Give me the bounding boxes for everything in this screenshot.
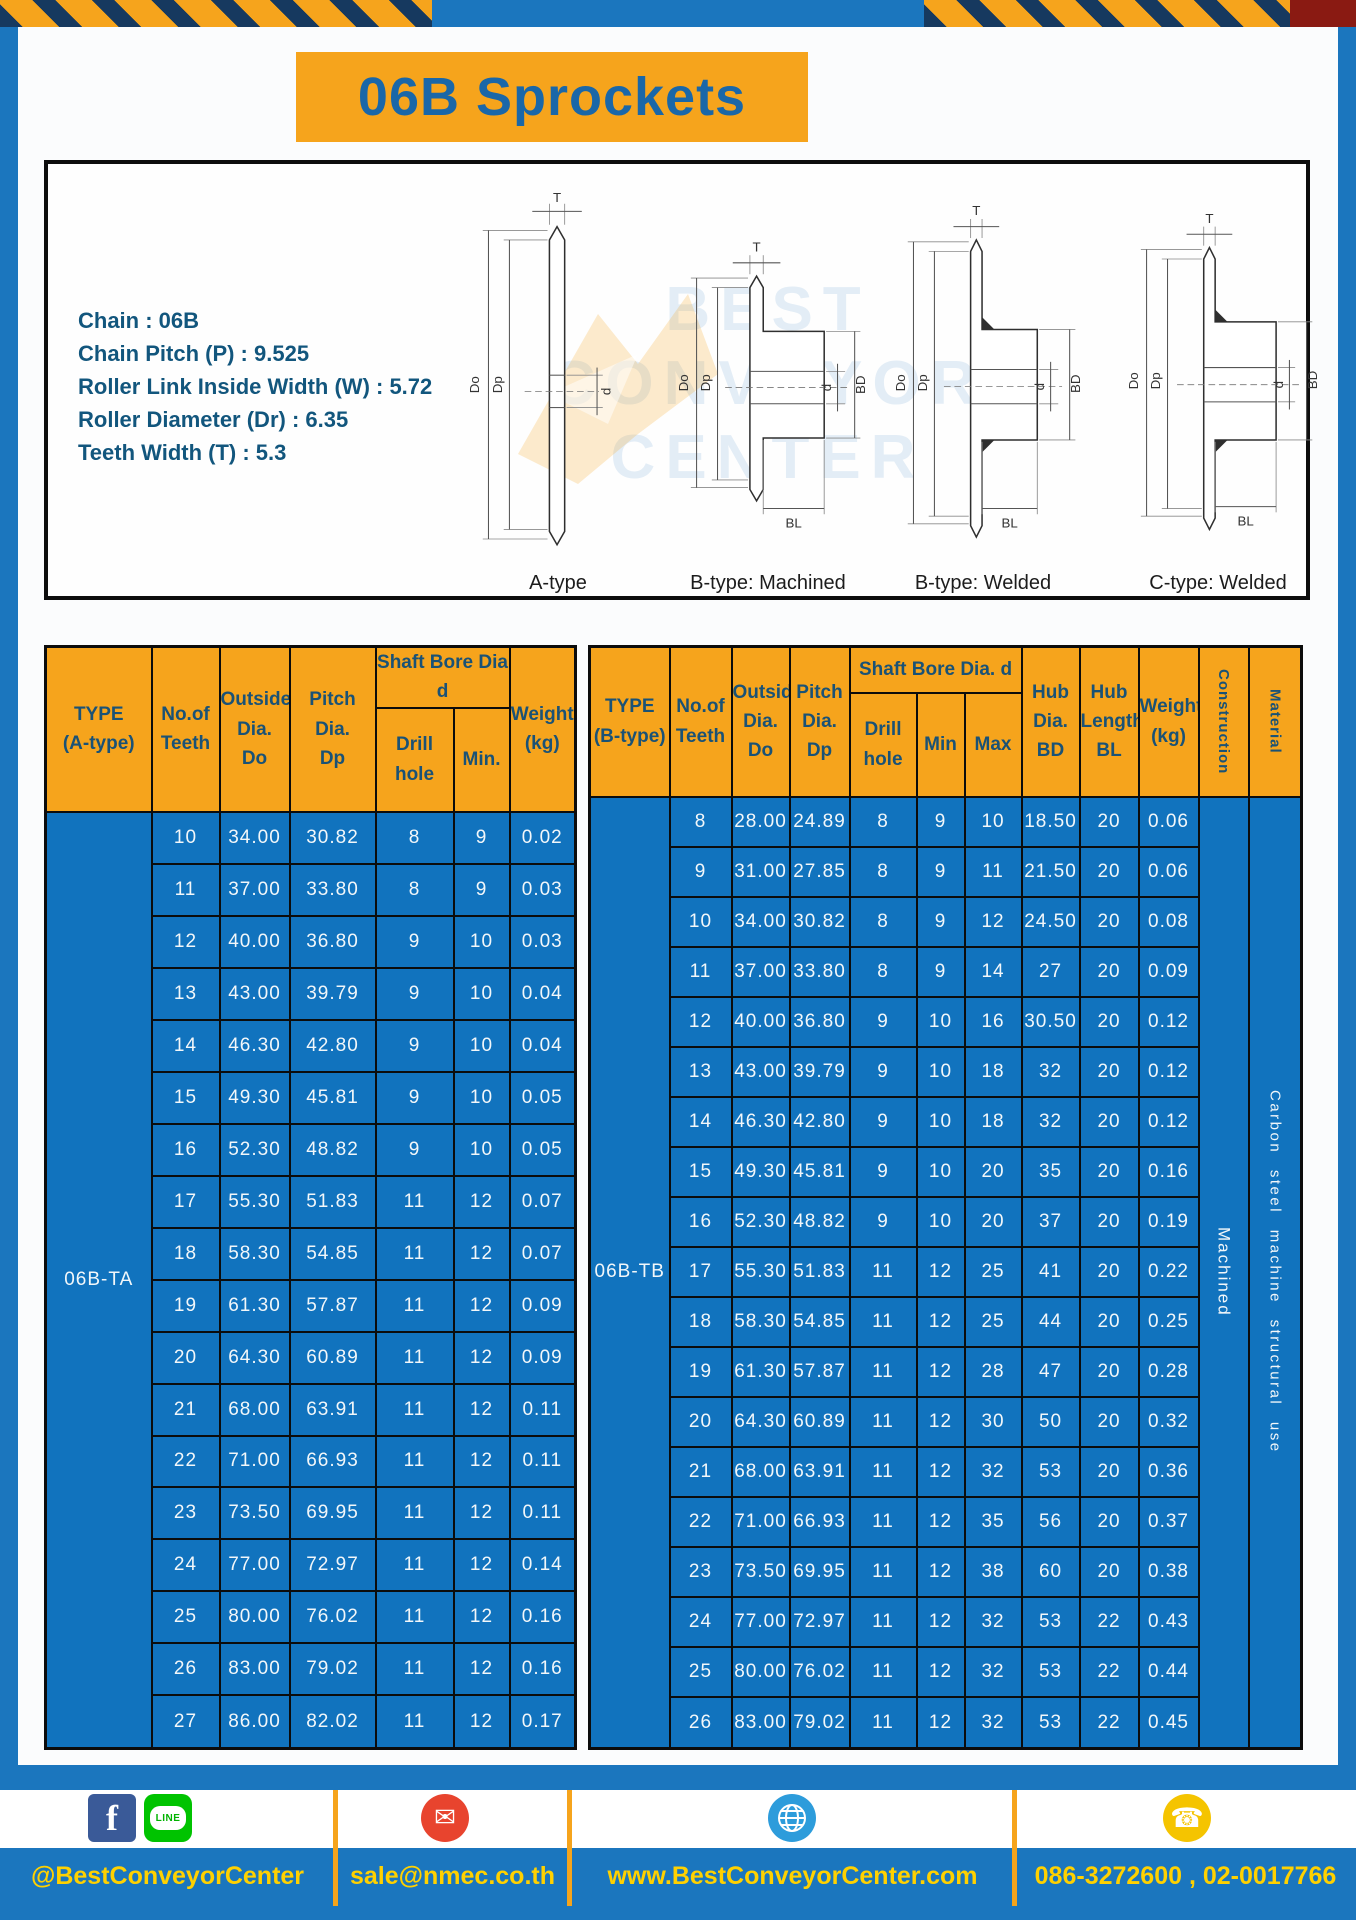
table-cell: 11 [376, 1280, 454, 1332]
table-cell: 79.02 [290, 1643, 376, 1695]
table-cell: 73.50 [732, 1547, 790, 1597]
table-cell: 25 [965, 1297, 1022, 1347]
svg-text:BD: BD [853, 375, 868, 394]
table-cell: 9 [917, 947, 965, 997]
svg-text:Do: Do [467, 376, 482, 393]
table-cell: 8 [850, 797, 917, 847]
table-cell: 73.50 [220, 1487, 290, 1539]
table-cell: 9 [850, 1047, 917, 1097]
table-cell: 0.12 [1139, 1047, 1199, 1097]
table-cell: 11 [850, 1347, 917, 1397]
svg-text:Do: Do [1126, 372, 1141, 389]
table-cell: 25 [670, 1647, 732, 1697]
table-cell: 34.00 [220, 812, 290, 864]
table-cell: 49.30 [732, 1147, 790, 1197]
header-drill-hole: Drill hole [850, 693, 917, 797]
spec-diagram-panel: BEST CONVEYOR CENTER Chain : 06B Chain P… [44, 160, 1310, 600]
table-cell: 20 [1080, 1047, 1139, 1097]
table-cell: 28 [965, 1347, 1022, 1397]
table-cell: 11 [376, 1176, 454, 1228]
table-cell: 34.00 [732, 897, 790, 947]
table-cell: 83.00 [220, 1643, 290, 1695]
table-cell: 20 [1080, 1297, 1139, 1347]
table-cell: 57.87 [290, 1280, 376, 1332]
table-cell: 20 [965, 1197, 1022, 1247]
table-row: 1446.3042.809101832200.12 [590, 1097, 1302, 1147]
table-cell: 39.79 [790, 1047, 850, 1097]
hazard-stripe-right [924, 0, 1290, 27]
page-title: 06B Sprockets [358, 66, 746, 128]
globe-glyph [775, 1801, 809, 1835]
table-cell: 9 [850, 997, 917, 1047]
diagram-caption: C-type: Welded [1149, 572, 1286, 595]
table-cell: 0.05 [510, 1072, 576, 1124]
svg-text:BD: BD [1068, 375, 1083, 394]
table-cell: 53 [1022, 1597, 1080, 1647]
table-cell: 23 [152, 1487, 220, 1539]
table-cell: 53 [1022, 1647, 1080, 1697]
table-cell: 68.00 [732, 1447, 790, 1497]
table-cell: 16 [965, 997, 1022, 1047]
table-cell: 18 [670, 1297, 732, 1347]
header-type: TYPE (A-type) [46, 647, 152, 812]
table-cell: 40.00 [732, 997, 790, 1047]
svg-text:BL: BL [1002, 516, 1018, 531]
c-type-welded-drawing-icon: T Do Dp d BD BL [1118, 186, 1318, 572]
table-cell: 0.08 [1139, 897, 1199, 947]
table-cell: 20 [1080, 1097, 1139, 1147]
mail-icon: ✉ [421, 1794, 469, 1842]
table-cell: 11 [850, 1397, 917, 1447]
svg-text:d: d [819, 384, 834, 391]
table-cell: 13 [670, 1047, 732, 1097]
table-cell: 10 [917, 1047, 965, 1097]
table-cell: 0.25 [1139, 1297, 1199, 1347]
table-cell: 66.93 [790, 1497, 850, 1547]
table-cell: 11 [376, 1384, 454, 1436]
table-cell: 58.30 [732, 1297, 790, 1347]
table-cell: 0.12 [1139, 997, 1199, 1047]
table-cell: 0.16 [510, 1643, 576, 1695]
table-cell: 51.83 [290, 1176, 376, 1228]
table-cell: 12 [917, 1247, 965, 1297]
table-cell: 32 [965, 1447, 1022, 1497]
table-cell: 41 [1022, 1247, 1080, 1297]
table-cell: 25 [965, 1247, 1022, 1297]
table-cell: 53 [1022, 1697, 1080, 1748]
footer-divider [567, 1790, 572, 1906]
svg-text:BL: BL [786, 516, 802, 531]
table-cell: 72.97 [290, 1539, 376, 1591]
table-cell: 10 [454, 916, 510, 968]
table-cell: 20 [1080, 897, 1139, 947]
table-cell: 63.91 [790, 1447, 850, 1497]
table-cell: 10 [917, 1147, 965, 1197]
table-cell: 0.17 [510, 1695, 576, 1748]
table-cell: 11 [850, 1547, 917, 1597]
footer-divider [333, 1790, 338, 1906]
svg-text:BD: BD [1305, 371, 1318, 390]
table-cell: 12 [917, 1297, 965, 1347]
table-cell: 12 [454, 1643, 510, 1695]
table-cell: 20 [1080, 1447, 1139, 1497]
table-row: 931.0027.85891121.50200.06 [590, 847, 1302, 897]
table-cell: 69.95 [790, 1547, 850, 1597]
table-cell: 38 [965, 1547, 1022, 1597]
header-pitch-dia: Pitch Dia. Dp [790, 647, 850, 797]
header-hub-length: Hub Length BL [1080, 647, 1139, 797]
table-row: 1343.0039.799101832200.12 [590, 1047, 1302, 1097]
table-cell: 42.80 [790, 1097, 850, 1147]
table-cell: 10 [152, 812, 220, 864]
table-cell: 13 [152, 968, 220, 1020]
table-cell: 9 [376, 1124, 454, 1176]
table-row: 1137.0033.80891427200.09 [590, 947, 1302, 997]
table-cell: 0.09 [510, 1280, 576, 1332]
table-cell: 69.95 [290, 1487, 376, 1539]
table-cell: 80.00 [732, 1647, 790, 1697]
table-cell: 0.03 [510, 864, 576, 916]
header-weight: Weight (kg) [510, 647, 576, 812]
table-cell: 0.04 [510, 1020, 576, 1072]
table-cell: 11 [670, 947, 732, 997]
table-cell: 0.11 [510, 1384, 576, 1436]
envelope-glyph: ✉ [434, 1803, 456, 1833]
table-cell: 0.14 [510, 1539, 576, 1591]
table-cell: 9 [670, 847, 732, 897]
table-row: 2477.0072.9711123253220.43 [590, 1597, 1302, 1647]
table-cell: 20 [1080, 1497, 1139, 1547]
table-cell: 24.89 [790, 797, 850, 847]
table-cell: 11 [850, 1597, 917, 1647]
table-cell: 0.44 [1139, 1647, 1199, 1697]
table-cell: 12 [917, 1497, 965, 1547]
svg-text:Dp: Dp [490, 376, 505, 393]
table-cell: 20 [1080, 847, 1139, 897]
table-cell: 68.00 [220, 1384, 290, 1436]
table-cell: 27 [152, 1695, 220, 1748]
table-cell: 20 [1080, 947, 1139, 997]
table-row: 1549.3045.819102035200.16 [590, 1147, 1302, 1197]
table-row: 1034.0030.82891224.50200.08 [590, 897, 1302, 947]
svg-text:T: T [972, 203, 980, 218]
table-cell: 0.19 [1139, 1197, 1199, 1247]
table-cell: 20 [1080, 1247, 1139, 1297]
table-cell: 51.83 [790, 1247, 850, 1297]
table-cell: 33.80 [290, 864, 376, 916]
table-cell: 9 [454, 864, 510, 916]
table-cell: 32 [965, 1647, 1022, 1697]
table-cell: 54.85 [790, 1297, 850, 1347]
svg-text:d: d [1032, 383, 1047, 390]
footer-email: sale@nmec.co.th [335, 1862, 570, 1891]
table-cell: 18 [965, 1097, 1022, 1147]
table-cell: 0.03 [510, 916, 576, 968]
svg-text:T: T [1205, 211, 1213, 226]
table-cell: 55.30 [220, 1176, 290, 1228]
table-cell: 12 [454, 1228, 510, 1280]
table-cell: 0.16 [510, 1591, 576, 1643]
title-banner: 06B Sprockets [296, 52, 808, 142]
header-teeth: No.of Teeth [152, 647, 220, 812]
table-cell: 12 [917, 1347, 965, 1397]
table-cell: 8 [376, 864, 454, 916]
type-cell: 06B-TB [590, 797, 670, 1749]
table-cell: 60 [1022, 1547, 1080, 1597]
header-material: Material [1249, 647, 1302, 797]
table-cell: 58.30 [220, 1228, 290, 1280]
material-cell: Carbon steel machine structural use [1249, 797, 1302, 1749]
header-teeth: No.of Teeth [670, 647, 732, 797]
spec-line: Teeth Width (T) : 5.3 [78, 436, 498, 469]
table-cell: 76.02 [290, 1591, 376, 1643]
table-row: 2064.3060.8911123050200.32 [590, 1397, 1302, 1447]
table-cell: 32 [1022, 1047, 1080, 1097]
table-cell: 0.45 [1139, 1697, 1199, 1748]
table-cell: 79.02 [790, 1697, 850, 1748]
table-cell: 26 [670, 1697, 732, 1748]
table-cell: 11 [850, 1297, 917, 1347]
table-cell: 46.30 [220, 1020, 290, 1072]
table-cell: 9 [850, 1097, 917, 1147]
table-row: 2271.0066.9311123556200.37 [590, 1497, 1302, 1547]
svg-text:Do: Do [676, 374, 691, 391]
table-cell: 52.30 [732, 1197, 790, 1247]
svg-text:Do: Do [893, 374, 908, 391]
footer-social-handle: @BestConveyorCenter [0, 1862, 335, 1891]
table-cell: 0.43 [1139, 1597, 1199, 1647]
table-cell: 36.80 [790, 997, 850, 1047]
header-weight: Weight (kg) [1139, 647, 1199, 797]
table-cell: 10 [670, 897, 732, 947]
table-cell: 14 [965, 947, 1022, 997]
header-construction: Construction [1199, 647, 1249, 797]
header-outside-dia: Outside Dia. Do [732, 647, 790, 797]
table-cell: 9 [376, 1020, 454, 1072]
table-cell: 12 [917, 1547, 965, 1597]
table-cell: 0.02 [510, 812, 576, 864]
table-cell: 9 [454, 812, 510, 864]
table-cell: 20 [1080, 1397, 1139, 1447]
spec-line: Roller Link Inside Width (W) : 5.72 [78, 370, 498, 403]
table-cell: 12 [917, 1597, 965, 1647]
table-cell: 8 [376, 812, 454, 864]
table-cell: 27.85 [790, 847, 850, 897]
table-a-type: TYPE (A-type) No.of Teeth Outside Dia. D… [44, 645, 574, 1750]
table-row: 1961.3057.8711122847200.28 [590, 1347, 1302, 1397]
table-cell: 11 [376, 1695, 454, 1748]
table-cell: 71.00 [732, 1497, 790, 1547]
table-cell: 9 [850, 1197, 917, 1247]
table-cell: 0.06 [1139, 797, 1199, 847]
spec-line: Chain : 06B [78, 304, 498, 337]
table-cell: 71.00 [220, 1436, 290, 1488]
table-cell: 0.37 [1139, 1497, 1199, 1547]
table-row: 2580.0076.0211123253220.44 [590, 1647, 1302, 1697]
footer-icon-strip [0, 1790, 1356, 1848]
table-cell: 9 [376, 1072, 454, 1124]
table-cell: 12 [454, 1436, 510, 1488]
table-cell: 22 [1080, 1697, 1139, 1748]
table-cell: 0.36 [1139, 1447, 1199, 1497]
table-cell: 76.02 [790, 1647, 850, 1697]
table-row: 1240.0036.809101630.50200.12 [590, 997, 1302, 1047]
table-cell: 21.50 [1022, 847, 1080, 897]
table-cell: 30 [965, 1397, 1022, 1447]
table-cell: 15 [152, 1072, 220, 1124]
header-hub-dia: Hub Dia. BD [1022, 647, 1080, 797]
diagram-caption: B-type: Welded [915, 572, 1051, 595]
table-cell: 77.00 [220, 1539, 290, 1591]
table-cell: 32 [1022, 1097, 1080, 1147]
table-cell: 12 [454, 1591, 510, 1643]
table-cell: 11 [376, 1487, 454, 1539]
table-cell: 10 [454, 1072, 510, 1124]
table-cell: 0.06 [1139, 847, 1199, 897]
table-cell: 35 [965, 1497, 1022, 1547]
table-cell: 0.11 [510, 1436, 576, 1488]
footer-website: www.BestConveyorCenter.com [570, 1862, 1015, 1891]
table-cell: 0.28 [1139, 1347, 1199, 1397]
table-cell: 0.05 [510, 1124, 576, 1176]
table-cell: 11 [850, 1497, 917, 1547]
table-cell: 60.89 [790, 1397, 850, 1447]
table-cell: 0.07 [510, 1228, 576, 1280]
sprocket-table-b: TYPE (B-type) No.of Teeth Outside Dia. D… [588, 645, 1303, 1750]
table-cell: 32 [965, 1597, 1022, 1647]
table-cell: 57.87 [790, 1347, 850, 1397]
table-cell: 18 [152, 1228, 220, 1280]
table-cell: 36.80 [290, 916, 376, 968]
table-cell: 12 [454, 1332, 510, 1384]
table-cell: 15 [670, 1147, 732, 1197]
table-cell: 37.00 [220, 864, 290, 916]
table-cell: 11 [376, 1228, 454, 1280]
table-row: 2373.5069.9511123860200.38 [590, 1547, 1302, 1597]
header-type: TYPE (B-type) [590, 647, 670, 797]
table-cell: 25 [152, 1591, 220, 1643]
table-row: 1858.3054.8511122544200.25 [590, 1297, 1302, 1347]
a-type-drawing-icon: T Do Dp d [458, 186, 658, 572]
diagram-b-type-welded: T Do Dp d BD BL [883, 186, 1083, 606]
table-cell: 64.30 [732, 1397, 790, 1447]
diagram-c-type-welded: T Do Dp d BD BL [1118, 186, 1318, 606]
table-cell: 63.91 [290, 1384, 376, 1436]
table-row: 2683.0079.0211123253220.45 [590, 1697, 1302, 1748]
table-cell: 9 [850, 1147, 917, 1197]
table-cell: 30.82 [290, 812, 376, 864]
table-cell: 0.16 [1139, 1147, 1199, 1197]
table-cell: 24 [152, 1539, 220, 1591]
table-cell: 11 [376, 1332, 454, 1384]
svg-text:Dp: Dp [1148, 372, 1163, 389]
table-cell: 37.00 [732, 947, 790, 997]
table-row: 2168.0063.9111123253200.36 [590, 1447, 1302, 1497]
table-cell: 24.50 [1022, 897, 1080, 947]
table-cell: 11 [152, 864, 220, 916]
construction-cell: Machined [1199, 797, 1249, 1749]
table-cell: 83.00 [732, 1697, 790, 1748]
table-cell: 28.00 [732, 797, 790, 847]
table-cell: 14 [152, 1020, 220, 1072]
table-cell: 12 [917, 1397, 965, 1447]
table-row: 06B-TA1034.0030.82890.02 [46, 812, 576, 864]
table-cell: 20 [1080, 1147, 1139, 1197]
table-cell: 77.00 [732, 1597, 790, 1647]
table-cell: 9 [376, 968, 454, 1020]
table-cell: 12 [454, 1695, 510, 1748]
header-min: Min [917, 693, 965, 797]
table-cell: 56 [1022, 1497, 1080, 1547]
spec-line: Roller Diameter (Dr) : 6.35 [78, 403, 498, 436]
table-cell: 23 [670, 1547, 732, 1597]
table-cell: 24 [670, 1597, 732, 1647]
table-cell: 9 [917, 847, 965, 897]
table-cell: 60.89 [290, 1332, 376, 1384]
table-cell: 12 [917, 1447, 965, 1497]
table-cell: 31.00 [732, 847, 790, 897]
table-cell: 46.30 [732, 1097, 790, 1147]
chain-specs: Chain : 06B Chain Pitch (P) : 9.525 Roll… [78, 304, 498, 469]
table-cell: 9 [917, 897, 965, 947]
table-cell: 8 [850, 897, 917, 947]
table-cell: 12 [152, 916, 220, 968]
page: 06B Sprockets BEST CONVEYOR CENTER Chain… [18, 27, 1338, 1765]
table-cell: 0.22 [1139, 1247, 1199, 1297]
table-cell: 42.80 [290, 1020, 376, 1072]
facebook-icon: f [88, 1794, 136, 1842]
table-cell: 8 [850, 947, 917, 997]
table-cell: 11 [376, 1591, 454, 1643]
table-cell: 12 [454, 1384, 510, 1436]
diagram-caption: A-type [529, 572, 587, 595]
table-cell: 48.82 [790, 1197, 850, 1247]
table-cell: 30.82 [790, 897, 850, 947]
table-row: 06B-TB828.0024.89891018.50200.06Machined… [590, 797, 1302, 847]
table-cell: 11 [850, 1247, 917, 1297]
table-cell: 33.80 [790, 947, 850, 997]
table-cell: 10 [917, 1197, 965, 1247]
table-cell: 17 [152, 1176, 220, 1228]
table-cell: 61.30 [220, 1280, 290, 1332]
table-cell: 11 [376, 1643, 454, 1695]
svg-text:Dp: Dp [698, 374, 713, 391]
corner-accent [1290, 0, 1356, 27]
table-cell: 12 [965, 897, 1022, 947]
table-cell: 12 [454, 1280, 510, 1332]
table-cell: 44 [1022, 1297, 1080, 1347]
header-min: Min. [454, 708, 510, 812]
facebook-letter: f [106, 1797, 118, 1839]
globe-icon [768, 1794, 816, 1842]
table-cell: 82.02 [290, 1695, 376, 1748]
table-cell: 43.00 [732, 1047, 790, 1097]
footer-phone-numbers: 086-3272600 , 02-0017766 [1015, 1862, 1356, 1891]
header-outside-dia: Outside Dia. Do [220, 647, 290, 812]
table-cell: 11 [850, 1647, 917, 1697]
table-cell: 19 [152, 1280, 220, 1332]
table-cell: 22 [152, 1436, 220, 1488]
table-cell: 0.07 [510, 1176, 576, 1228]
table-cell: 20 [1080, 1197, 1139, 1247]
table-cell: 12 [670, 997, 732, 1047]
table-cell: 10 [917, 1097, 965, 1147]
table-cell: 47 [1022, 1347, 1080, 1397]
table-row: 1652.3048.829102037200.19 [590, 1197, 1302, 1247]
table-cell: 19 [670, 1347, 732, 1397]
sprocket-table-a: TYPE (A-type) No.of Teeth Outside Dia. D… [44, 645, 577, 1750]
table-cell: 52.30 [220, 1124, 290, 1176]
